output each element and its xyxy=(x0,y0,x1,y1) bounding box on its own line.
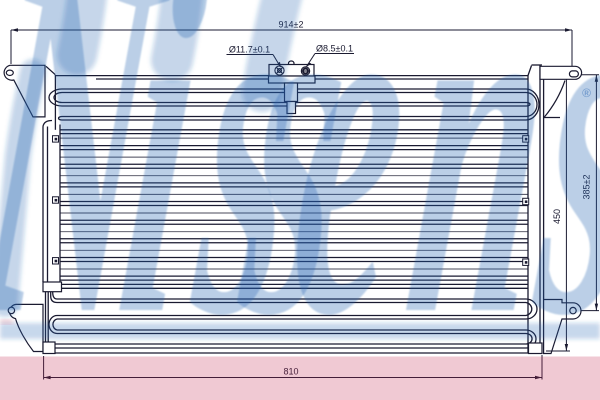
svg-text:®: ® xyxy=(582,86,591,100)
